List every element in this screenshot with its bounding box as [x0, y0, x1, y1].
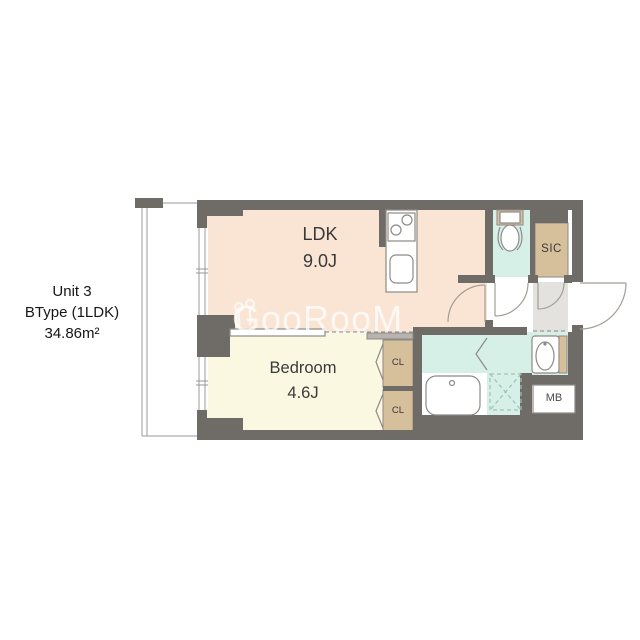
washbasin-cabinet [559, 336, 567, 373]
meter-box-label: MB [533, 392, 575, 404]
floor-plan-canvas: Unit 3 BType (1LDK) 34.86m² GooRooM LDK … [0, 0, 640, 640]
closet-lower-label: CL [383, 405, 413, 416]
bedroom-room-name: Bedroom [233, 356, 373, 381]
ldk-room-label: LDK 9.0J [255, 221, 385, 275]
bathtub-icon [426, 376, 480, 415]
closet-upper-label: CL [383, 357, 413, 368]
watermark-logo-icon [232, 299, 258, 331]
kitchen-sink-icon [390, 255, 413, 283]
bedroom-window [196, 357, 208, 410]
bedroom-room-size: 4.6J [233, 381, 373, 406]
washbasin-icon [532, 336, 567, 373]
unit-info: Unit 3 BType (1LDK) 34.86m² [4, 281, 140, 344]
balcony-railing [135, 198, 197, 436]
stove-icon [388, 213, 415, 241]
sic-label: SIC [535, 243, 568, 255]
unit-area: 34.86m² [4, 323, 140, 344]
ldk-room-name: LDK [255, 221, 385, 248]
bedroom-room-label: Bedroom 4.6J [233, 356, 373, 406]
watermark: GooRooM [232, 299, 462, 339]
kitchen-counter [386, 210, 417, 292]
ldk-room-size: 9.0J [255, 248, 385, 275]
unit-type: BType (1LDK) [4, 302, 140, 323]
ldk-window [196, 228, 208, 315]
entrance-door-arc [580, 283, 626, 329]
unit-number: Unit 3 [4, 281, 140, 302]
